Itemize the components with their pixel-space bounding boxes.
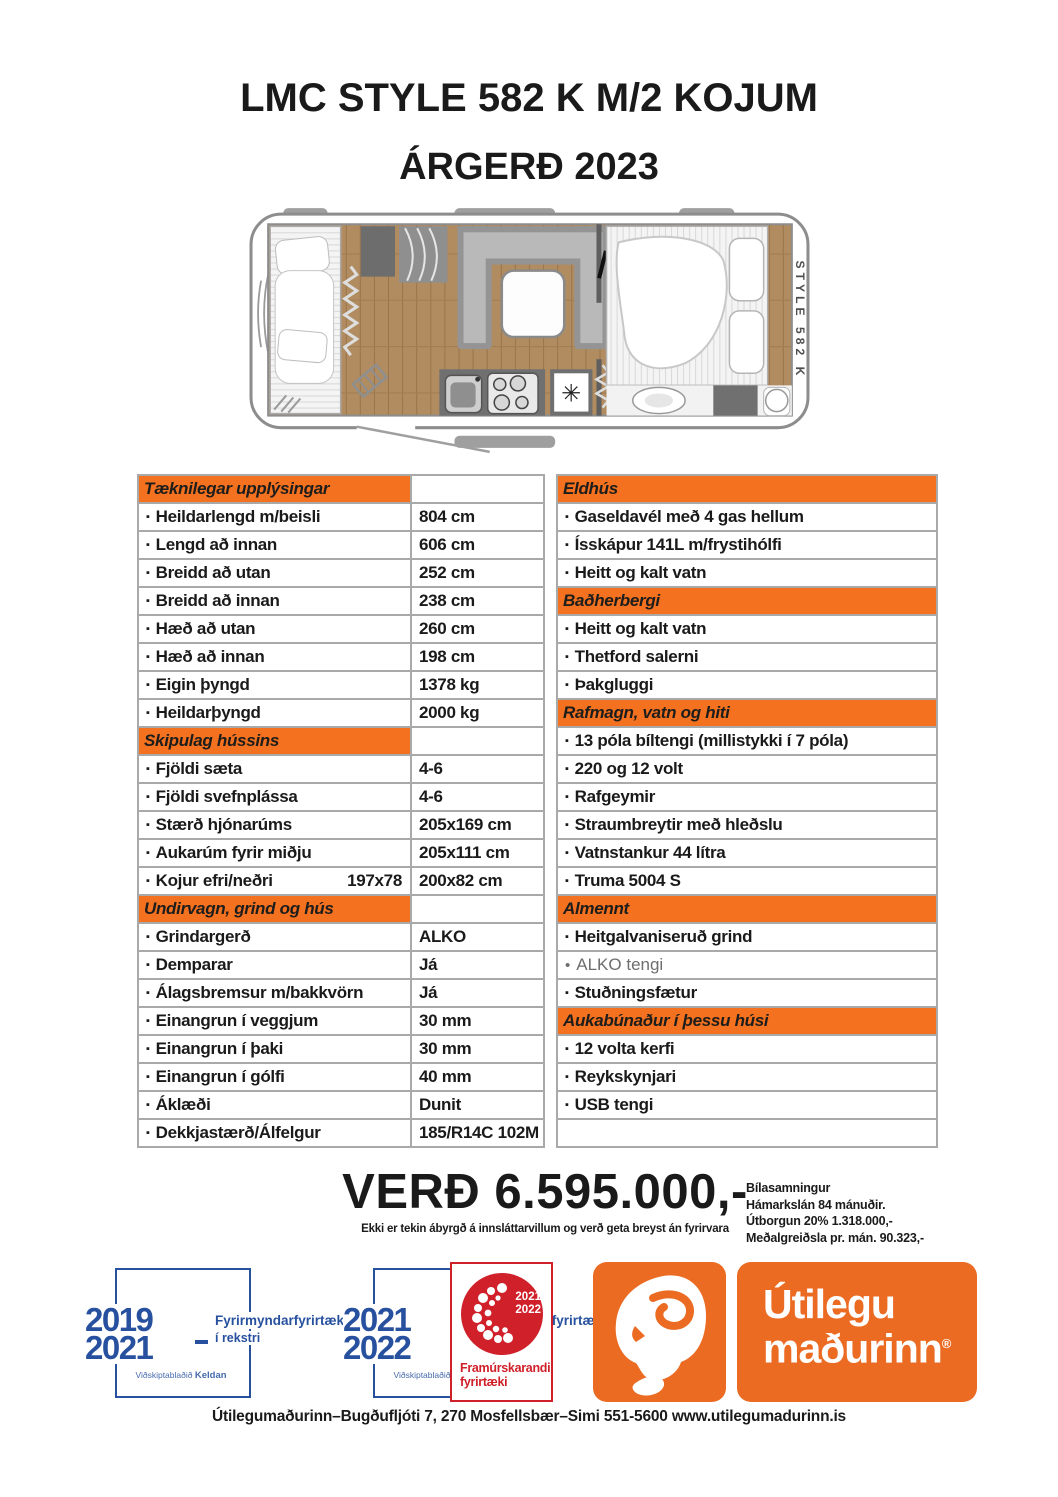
vanity-cabinet — [713, 385, 757, 415]
spec-value: 238 cm — [412, 588, 543, 614]
spec-value: Dunit — [412, 1092, 543, 1118]
bullet-icon: ▪ — [146, 1072, 150, 1083]
bullet-icon: • — [565, 958, 570, 973]
spec-label: Þakgluggi — [575, 675, 654, 695]
bullet-icon: ▪ — [565, 1072, 569, 1083]
spec-section-header: Eldhús — [558, 476, 936, 504]
spec-value: 30 mm — [412, 1036, 543, 1062]
brand-mascot-tile — [593, 1262, 726, 1402]
spec-label-cell: ▪Reykskynjari — [558, 1064, 936, 1090]
brand-name-line1: Útilegu — [763, 1284, 895, 1324]
section-title: Undirvagn, grind og hús — [139, 896, 412, 922]
excellence-label-line1: Framúrskarandi — [460, 1362, 550, 1376]
spec-label-cell: ▪Þakgluggi — [558, 672, 936, 698]
spec-label: Stuðningsfætur — [575, 983, 697, 1003]
freezer-icon: ✳ — [550, 369, 592, 415]
spec-row: ▪Hæð að utan260 cm — [139, 616, 543, 644]
bullet-icon: ▪ — [565, 848, 569, 859]
spec-row: ▪Einangrun í gólfi40 mm — [139, 1064, 543, 1092]
spec-value: 205x111 cm — [412, 840, 543, 866]
spec-label-cell: ▪12 volta kerfi — [558, 1036, 936, 1062]
spec-row: ▪Breidd að innan238 cm — [139, 588, 543, 616]
spec-label-cell: ▪USB tengi — [558, 1092, 936, 1118]
bathroom-sink — [633, 387, 685, 413]
section-title: Almennt — [558, 896, 936, 922]
spec-row: ▪Einangrun í þaki30 mm — [139, 1036, 543, 1064]
brand-name-line2: maðurinn — [763, 1326, 942, 1372]
spec-label-cell: ▪Eigin þyngd — [139, 672, 412, 698]
spec-row: ▪Eigin þyngd1378 kg — [139, 672, 543, 700]
spec-row: ▪Fjöldi sæta4-6 — [139, 756, 543, 784]
spec-label-cell: •ALKO tengi — [558, 952, 936, 978]
section-spacer — [412, 476, 543, 502]
spec-row: ▪Lengd að innan606 cm — [139, 532, 543, 560]
spec-label-cell: ▪Ísskápur 141L m/frystihólfi — [558, 532, 936, 558]
spec-label: Grindargerð — [156, 927, 251, 947]
spec-label: Rafgeymir — [575, 787, 655, 807]
award-badge-2019-2021: 2019 2021 Fyrirmyndarfyrirtæki í rekstri… — [85, 1264, 315, 1402]
financing-line: Útborgun 20% 1.318.000,- — [746, 1213, 924, 1230]
section-title: Skipulag hússins — [139, 728, 412, 754]
bullet-icon: ▪ — [565, 820, 569, 831]
spec-row: ▪Heitgalvaniseruð grind — [558, 924, 936, 952]
spec-row: ▪Þakgluggi — [558, 672, 936, 700]
bullet-icon: ▪ — [146, 848, 150, 859]
spec-label: Dekkjastærð/Álfelgur — [156, 1123, 321, 1143]
spec-label: Heildarþyngd — [156, 703, 261, 723]
spec-label: 12 volta kerfi — [575, 1039, 675, 1059]
bullet-icon: ▪ — [565, 512, 569, 523]
logo-row: 2019 2021 Fyrirmyndarfyrirtæki í rekstri… — [85, 1262, 980, 1402]
spec-label: Breidd að innan — [156, 591, 280, 611]
bullet-icon: ▪ — [146, 764, 150, 775]
spec-label-cell: ▪13 póla bíltengi (millistykki í 7 póla) — [558, 728, 936, 754]
empty-cell — [558, 1120, 936, 1146]
bullet-icon: ▪ — [565, 736, 569, 747]
spec-row: ▪220 og 12 volt — [558, 756, 936, 784]
spec-value: 40 mm — [412, 1064, 543, 1090]
spec-row: ▪Heildarþyngd2000 kg — [139, 700, 543, 728]
spec-value: 205x169 cm — [412, 812, 543, 838]
spec-value: 4-6 — [412, 784, 543, 810]
spec-row: ▪Reykskynjari — [558, 1064, 936, 1092]
spec-value: 252 cm — [412, 560, 543, 586]
spec-row: ▪Fjöldi svefnplássa4-6 — [139, 784, 543, 812]
spec-label: Reykskynjari — [575, 1067, 676, 1087]
mascot-face-icon — [593, 1262, 726, 1402]
brand-wordmark-tile: Útilegu maðurinn® — [737, 1262, 977, 1402]
snowflake-symbol: ✳ — [561, 381, 581, 408]
award-year-bottom: 2022 — [343, 1334, 410, 1362]
spec-label: Eigin þyngd — [156, 675, 250, 695]
stove-icon — [488, 373, 538, 413]
wardrobe — [361, 226, 448, 282]
spec-row: ▪Breidd að utan252 cm — [139, 560, 543, 588]
bullet-icon: ▪ — [146, 680, 150, 691]
spec-label: Hæð að utan — [156, 619, 256, 639]
spec-label-cell: ▪Thetford salerni — [558, 644, 936, 670]
bullet-icon: ▪ — [146, 1044, 150, 1055]
spec-row: ▪Straumbreytir með hleðslu — [558, 812, 936, 840]
bullet-icon: ▪ — [565, 764, 569, 775]
spec-label: Demparar — [156, 955, 233, 975]
bullet-icon: ▪ — [565, 792, 569, 803]
spec-label-cell: ▪220 og 12 volt — [558, 756, 936, 782]
floorplan-drawing: ✳ TV — [248, 208, 812, 454]
spec-label-cell: ▪Grindargerð — [139, 924, 412, 950]
spec-label: Einangrun í veggjum — [156, 1011, 318, 1031]
spec-label: Áklæði — [156, 1095, 211, 1115]
bullet-icon: ▪ — [146, 792, 150, 803]
model-year-subtitle: ÁRGERÐ 2023 — [0, 146, 1058, 189]
award-subtitle: í rekstri — [213, 1331, 262, 1345]
excellence-year-top: 2021 — [515, 1291, 541, 1304]
spec-label-cell: ▪Stærð hjónarúms — [139, 812, 412, 838]
kitchen-block — [439, 369, 545, 415]
spec-label: Fjöldi svefnplássa — [156, 787, 298, 807]
spec-label-cell: ▪Heildarþyngd — [139, 700, 412, 726]
spec-value: Já — [412, 952, 543, 978]
section-title: Rafmagn, vatn og hiti — [558, 700, 936, 726]
spec-label: Fjöldi sæta — [156, 759, 242, 779]
section-title: Baðherbergi — [558, 588, 936, 614]
spec-section-header: Skipulag hússins — [139, 728, 543, 756]
award-source: Viðskiptablaðið — [393, 1370, 450, 1380]
spec-tables: Tæknilegar upplýsingar▪Heildarlengd m/be… — [137, 474, 938, 1148]
spec-value: 1378 kg — [412, 672, 543, 698]
spec-label-cell: ▪Gaseldavél með 4 gas hellum — [558, 504, 936, 530]
spec-label: Gaseldavél með 4 gas hellum — [575, 507, 804, 527]
spec-label-cell: ▪Heitgalvaniseruð grind — [558, 924, 936, 950]
spec-row: ▪12 volta kerfi — [558, 1036, 936, 1064]
spec-row-empty — [558, 1120, 936, 1148]
spec-label-cell: ▪Hæð að utan — [139, 616, 412, 642]
bullet-icon: ▪ — [565, 568, 569, 579]
bathroom — [607, 385, 792, 415]
spec-row: ▪Kojur efri/neðri197x78200x82 cm — [139, 868, 543, 896]
spec-label: Straumbreytir með hleðslu — [575, 815, 783, 835]
bullet-icon: ▪ — [146, 708, 150, 719]
excellence-label-line2: fyrirtæki — [460, 1376, 550, 1390]
spec-section-header: Undirvagn, grind og hús — [139, 896, 543, 924]
bullet-icon: ▪ — [146, 512, 150, 523]
keldan-logo: Keldan — [195, 1370, 227, 1381]
spec-row: •ALKO tengi — [558, 952, 936, 980]
spec-label: 13 póla bíltengi (millistykki í 7 póla) — [575, 731, 849, 751]
spec-table-left: Tæknilegar upplýsingar▪Heildarlengd m/be… — [137, 474, 545, 1148]
spec-label: Ísskápur 141L m/frystihólfi — [575, 535, 782, 555]
bullet-icon: ▪ — [146, 624, 150, 635]
spec-value: 260 cm — [412, 616, 543, 642]
award-source: Viðskiptablaðið — [135, 1370, 192, 1380]
bullet-icon: ▪ — [565, 652, 569, 663]
spec-row: ▪Stærð hjónarúms205x169 cm — [139, 812, 543, 840]
section-title: Tæknilegar upplýsingar — [139, 476, 412, 502]
spec-label: Heildarlengd m/beisli — [156, 507, 321, 527]
spec-label: Lengd að innan — [156, 535, 277, 555]
spec-label-cell: ▪Kojur efri/neðri197x78 — [139, 868, 412, 894]
bullet-icon: ▪ — [146, 1016, 150, 1027]
spec-label: Kojur efri/neðri — [156, 871, 273, 891]
spec-table-right: Eldhús▪Gaseldavél með 4 gas hellum▪Ísská… — [556, 474, 938, 1148]
bullet-icon: ▪ — [146, 988, 150, 999]
section-title: Aukabúnaður í þessu húsi — [558, 1008, 936, 1034]
spec-label: Thetford salerni — [575, 647, 699, 667]
bullet-icon: ▪ — [146, 1128, 150, 1139]
spec-value: 198 cm — [412, 644, 543, 670]
bunk-beds — [270, 226, 341, 413]
spec-value: 804 cm — [412, 504, 543, 530]
spec-row: ▪Thetford salerni — [558, 644, 936, 672]
bullet-icon: ▪ — [565, 540, 569, 551]
spec-row: ▪Vatnstankur 44 lítra — [558, 840, 936, 868]
financing-line: Hámarkslán 84 mánuðir. — [746, 1197, 924, 1214]
spec-label-cell: ▪Aukarúm fyrir miðju — [139, 840, 412, 866]
spec-label-cell: ▪Dekkjastærð/Álfelgur — [139, 1120, 412, 1146]
model-label: STYLE 582 K — [793, 261, 807, 380]
spec-label-cell: ▪Einangrun í gólfi — [139, 1064, 412, 1090]
spec-row: ▪GrindargerðALKO — [139, 924, 543, 952]
pillow — [729, 311, 763, 373]
spec-label-cell: ▪Einangrun í þaki — [139, 1036, 412, 1062]
spec-label-cell: ▪Rafgeymir — [558, 784, 936, 810]
spec-label-cell: ▪Heildarlengd m/beisli — [139, 504, 412, 530]
spec-label-cell: ▪Fjöldi sæta — [139, 756, 412, 782]
bullet-icon: ▪ — [565, 932, 569, 943]
brochure-page: LMC STYLE 582 K M/2 KOJUM ÁRGERÐ 2023 — [0, 0, 1058, 1497]
bullet-icon: ▪ — [565, 680, 569, 691]
spec-label: Álagsbremsur m/bakkvörn — [156, 983, 364, 1003]
spec-row: ▪Ísskápur 141L m/frystihólfi — [558, 532, 936, 560]
spec-value: 200x82 cm — [412, 868, 543, 894]
spec-label-cell: ▪Breidd að innan — [139, 588, 412, 614]
spec-label: Hæð að innan — [156, 647, 265, 667]
spec-row: ▪Rafgeymir — [558, 784, 936, 812]
sink-icon — [445, 375, 481, 412]
bullet-icon: ▪ — [146, 960, 150, 971]
spec-row: ▪Gaseldavél með 4 gas hellum — [558, 504, 936, 532]
spec-row: ▪Truma 5004 S — [558, 868, 936, 896]
spec-section-header: Tæknilegar upplýsingar — [139, 476, 543, 504]
section-spacer — [412, 896, 543, 922]
caravan-floorplan: ✳ TV — [248, 208, 812, 454]
spec-label-cell: ▪Stuðningsfætur — [558, 980, 936, 1006]
section-title: Eldhús — [558, 476, 936, 502]
spec-section-header: Baðherbergi — [558, 588, 936, 616]
spec-row: ▪Hæð að innan198 cm — [139, 644, 543, 672]
bullet-icon: ▪ — [565, 624, 569, 635]
spec-label: Heitgalvaniseruð grind — [575, 927, 753, 947]
spec-label-cell: ▪Heitt og kalt vatn — [558, 616, 936, 642]
bullet-icon: ▪ — [565, 988, 569, 999]
excellence-year-bottom: 2022 — [515, 1304, 541, 1317]
bullet-icon: ▪ — [146, 876, 150, 887]
spec-label: Einangrun í gólfi — [156, 1067, 285, 1087]
spec-section-header: Rafmagn, vatn og hiti — [558, 700, 936, 728]
spec-row: ▪13 póla bíltengi (millistykki í 7 póla) — [558, 728, 936, 756]
spec-row: ▪DempararJá — [139, 952, 543, 980]
spec-row: ▪Stuðningsfætur — [558, 980, 936, 1008]
underscore-mark — [195, 1340, 208, 1344]
spec-row: ▪Álagsbremsur m/bakkvörnJá — [139, 980, 543, 1008]
spec-label: ALKO tengi — [576, 955, 663, 975]
spec-label-cell: ▪Hæð að innan — [139, 644, 412, 670]
bullet-icon: ▪ — [565, 1044, 569, 1055]
financing-line: Bílasamningur — [746, 1180, 924, 1197]
spec-label-cell: ▪Einangrun í veggjum — [139, 1008, 412, 1034]
bullet-icon: ▪ — [146, 540, 150, 551]
financing-line: Meðalgreiðsla pr. mán. 90.323,- — [746, 1230, 924, 1247]
spec-value: Já — [412, 980, 543, 1006]
spec-label-cell: ▪Breidd að utan — [139, 560, 412, 586]
spec-row: ▪USB tengi — [558, 1092, 936, 1120]
spec-label-cell: ▪Truma 5004 S — [558, 868, 936, 894]
spec-label-cell: ▪Lengd að innan — [139, 532, 412, 558]
bullet-icon: ▪ — [146, 932, 150, 943]
bullet-icon: ▪ — [146, 652, 150, 663]
spec-value: 30 mm — [412, 1008, 543, 1034]
spec-row: ▪Heitt og kalt vatn — [558, 616, 936, 644]
contact-footer: Útilegumaðurinn–Bugðufljóti 7, 270 Mosfe… — [0, 1408, 1058, 1426]
award-title: Fyrirmyndarfyrirtæki — [213, 1312, 350, 1329]
pillow — [729, 238, 763, 300]
spec-label: Breidd að utan — [156, 563, 271, 583]
spec-label-cell: ▪Straumbreytir með hleðslu — [558, 812, 936, 838]
award-year-bottom: 2021 — [85, 1334, 152, 1362]
spec-label: USB tengi — [575, 1095, 654, 1115]
bullet-icon: ▪ — [146, 820, 150, 831]
spec-value: ALKO — [412, 924, 543, 950]
bullet-icon: ▪ — [146, 596, 150, 607]
spec-value: 606 cm — [412, 532, 543, 558]
spec-value: 4-6 — [412, 756, 543, 782]
spec-label-cell: ▪Demparar — [139, 952, 412, 978]
bullet-icon: ▪ — [146, 568, 150, 579]
excellence-badge: 2021 2022 Framúrskarandi fyrirtæki — [450, 1262, 553, 1402]
bullet-icon: ▪ — [565, 876, 569, 887]
spec-section-header: Almennt — [558, 896, 936, 924]
spec-label-cell: ▪Heitt og kalt vatn — [558, 560, 936, 586]
dinette-table — [502, 271, 564, 337]
spec-value: 2000 kg — [412, 700, 543, 726]
spec-row: ▪Dekkjastærð/Álfelgur185/R14C 102M — [139, 1120, 543, 1148]
section-spacer — [412, 728, 543, 754]
registered-mark: ® — [942, 1336, 951, 1351]
financing-block: Bílasamningur Hámarkslán 84 mánuðir. Útb… — [746, 1180, 924, 1246]
toilet — [764, 387, 790, 415]
spec-label: Truma 5004 S — [575, 871, 681, 891]
spec-label-cell: ▪Álagsbremsur m/bakkvörn — [139, 980, 412, 1006]
spec-label-cell: ▪Vatnstankur 44 lítra — [558, 840, 936, 866]
spec-label: Vatnstankur 44 lítra — [575, 843, 726, 863]
spec-row: ▪ÁklæðiDunit — [139, 1092, 543, 1120]
spec-row: ▪Heitt og kalt vatn — [558, 560, 936, 588]
double-bed — [607, 226, 768, 385]
spec-section-header: Aukabúnaður í þessu húsi — [558, 1008, 936, 1036]
spec-label: Heitt og kalt vatn — [575, 619, 707, 639]
bullet-icon: ▪ — [146, 1100, 150, 1111]
spec-label: Aukarúm fyrir miðju — [156, 843, 312, 863]
page-title: LMC STYLE 582 K M/2 KOJUM — [0, 76, 1058, 121]
spec-value: 185/R14C 102M — [412, 1120, 543, 1146]
spec-label: 220 og 12 volt — [575, 759, 683, 779]
spec-row: ▪Aukarúm fyrir miðju205x111 cm — [139, 840, 543, 868]
spec-label: Stærð hjónarúms — [156, 815, 292, 835]
spec-row: ▪Einangrun í veggjum30 mm — [139, 1008, 543, 1036]
spec-label-cell: ▪Áklæði — [139, 1092, 412, 1118]
bullet-icon: ▪ — [565, 1100, 569, 1111]
spec-sublabel: 197x78 — [347, 871, 402, 891]
spec-label: Heitt og kalt vatn — [575, 563, 707, 583]
spec-row: ▪Heildarlengd m/beisli804 cm — [139, 504, 543, 532]
spec-label: Einangrun í þaki — [156, 1039, 283, 1059]
spec-label-cell: ▪Fjöldi svefnplássa — [139, 784, 412, 810]
